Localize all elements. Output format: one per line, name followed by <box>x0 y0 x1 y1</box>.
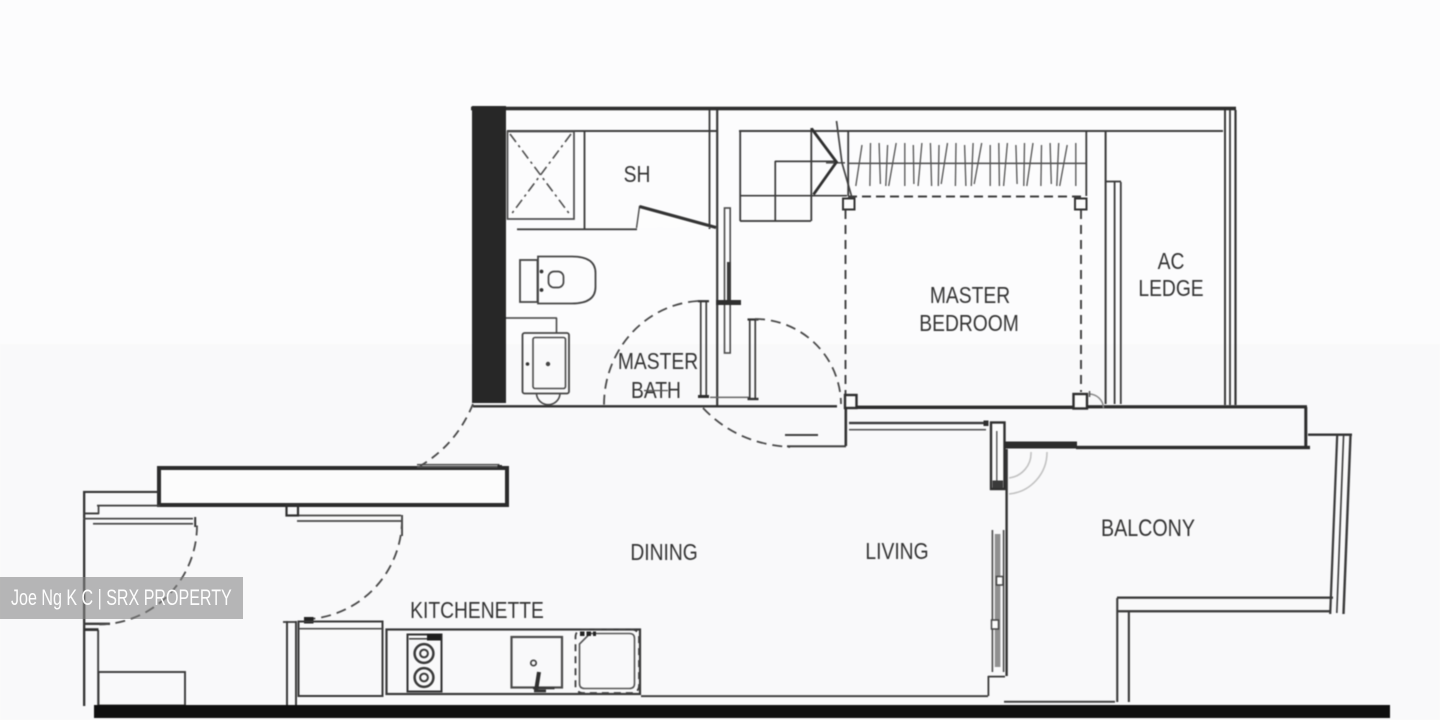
svg-text:LIVING: LIVING <box>865 538 928 564</box>
svg-text:BALCONY: BALCONY <box>1101 514 1195 541</box>
svg-text:BEDROOM: BEDROOM <box>919 310 1018 336</box>
svg-text:MASTER: MASTER <box>618 348 698 374</box>
svg-text:KITCHENETTE: KITCHENETTE <box>410 597 544 623</box>
svg-text:LEDGE: LEDGE <box>1138 275 1203 301</box>
svg-text:SH: SH <box>624 161 651 187</box>
svg-text:MASTER: MASTER <box>930 282 1010 308</box>
svg-text:DINING: DINING <box>630 539 697 565</box>
svg-text:AC: AC <box>1158 248 1185 274</box>
